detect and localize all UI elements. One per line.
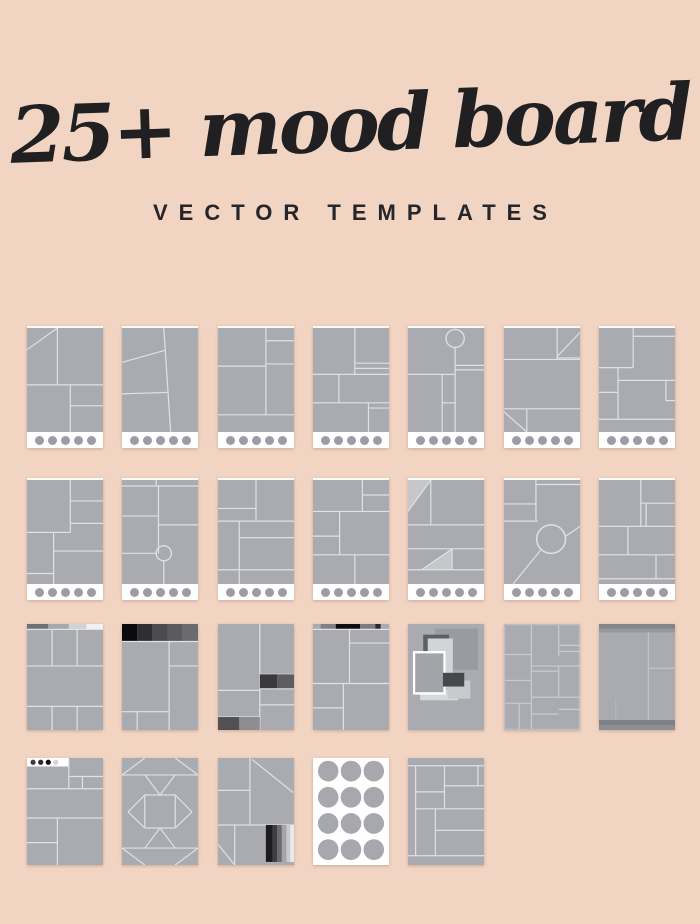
photo-dots-strip bbox=[27, 432, 103, 448]
dot-icon bbox=[551, 588, 560, 597]
dot-icon bbox=[646, 436, 655, 445]
photo-dots-strip bbox=[599, 584, 675, 600]
dot-icon bbox=[226, 436, 235, 445]
template-row-1 bbox=[0, 326, 700, 448]
dot-icon bbox=[564, 588, 573, 597]
template-collage bbox=[408, 328, 484, 432]
photo-dots-strip bbox=[599, 432, 675, 448]
dot-icon bbox=[468, 436, 477, 445]
template-thumbnail-nested-grid-r1c7 bbox=[599, 326, 675, 448]
dot-icon bbox=[659, 436, 668, 445]
dot-icon bbox=[416, 588, 425, 597]
dot-icon bbox=[633, 436, 642, 445]
dot-icon bbox=[156, 436, 165, 445]
dot-icon bbox=[169, 436, 178, 445]
template-collage bbox=[218, 758, 294, 865]
dot-icon bbox=[442, 588, 451, 597]
template-thumbnail-mondrian-grid-r2c1 bbox=[27, 478, 103, 600]
template-thumbnail-diagonal-corners-r1c6 bbox=[504, 326, 580, 448]
template-thumbnail-offset-grid-r2c4 bbox=[313, 478, 389, 600]
template-thumbnail-brick-grid-r2c7 bbox=[599, 478, 675, 600]
dot-icon bbox=[607, 588, 616, 597]
template-thumbnail-tonal-strip-light-r3c1 bbox=[27, 624, 103, 730]
template-collage bbox=[122, 758, 198, 865]
template-collage bbox=[313, 328, 389, 432]
dot-icon bbox=[512, 436, 521, 445]
dot-icon bbox=[182, 588, 191, 597]
dot-icon bbox=[334, 588, 343, 597]
dot-icon bbox=[87, 436, 96, 445]
template-thumbnail-inset-grid-r4c5 bbox=[408, 758, 484, 865]
photo-dots-strip bbox=[504, 584, 580, 600]
template-thumbnail-swatch-blocks-r3c3 bbox=[218, 624, 294, 730]
dot-icon bbox=[538, 436, 547, 445]
template-thumbnail-circle-top-r1c5 bbox=[408, 326, 484, 448]
photo-dots-strip bbox=[218, 584, 294, 600]
template-collage bbox=[408, 758, 484, 865]
template-collage bbox=[408, 480, 484, 584]
dot-icon bbox=[538, 588, 547, 597]
dot-icon bbox=[61, 436, 70, 445]
template-collage bbox=[122, 480, 198, 584]
dot-icon bbox=[169, 588, 178, 597]
template-thumbnail-stacked-bands-r1c4 bbox=[313, 326, 389, 448]
template-thumbnail-tonal-strip-dark-r3c2 bbox=[122, 624, 198, 730]
template-thumbnail-palette-dots-grid-r4c1 bbox=[27, 758, 103, 865]
template-collage bbox=[313, 480, 389, 584]
template-collage bbox=[313, 624, 389, 730]
dot-icon bbox=[360, 436, 369, 445]
template-thumbnail-diagonal-gradient-strip-r4c3 bbox=[218, 758, 294, 865]
dot-icon bbox=[321, 436, 330, 445]
template-collage bbox=[27, 328, 103, 432]
dot-icon bbox=[607, 436, 616, 445]
template-collage bbox=[313, 758, 389, 865]
template-thumbnail-layered-collage-r3c5 bbox=[408, 624, 484, 730]
dot-icon bbox=[620, 588, 629, 597]
dot-icon bbox=[659, 588, 668, 597]
dot-icon bbox=[442, 436, 451, 445]
template-collage bbox=[27, 480, 103, 584]
dot-icon bbox=[252, 436, 261, 445]
photo-dots-strip bbox=[504, 432, 580, 448]
dot-icon bbox=[265, 436, 274, 445]
dot-icon bbox=[143, 436, 152, 445]
template-thumbnail-slanted-panels-r1c2 bbox=[122, 326, 198, 448]
dot-icon bbox=[334, 436, 343, 445]
template-collage bbox=[599, 624, 675, 730]
template-collage bbox=[504, 624, 580, 730]
dot-icon bbox=[35, 436, 44, 445]
template-collage bbox=[504, 480, 580, 584]
dot-icon bbox=[416, 436, 425, 445]
dot-icon bbox=[74, 588, 83, 597]
dot-icon bbox=[455, 588, 464, 597]
template-collage bbox=[408, 624, 484, 730]
template-row-3 bbox=[0, 624, 700, 730]
dot-icon bbox=[61, 588, 70, 597]
dot-icon bbox=[48, 436, 57, 445]
dot-icon bbox=[35, 588, 44, 597]
template-collage bbox=[504, 328, 580, 432]
dot-icon bbox=[143, 588, 152, 597]
dot-icon bbox=[373, 436, 382, 445]
dot-icon bbox=[265, 588, 274, 597]
photo-dots-strip bbox=[313, 584, 389, 600]
dot-icon bbox=[156, 588, 165, 597]
photo-dots-strip bbox=[313, 432, 389, 448]
template-collage bbox=[599, 328, 675, 432]
dot-icon bbox=[87, 588, 96, 597]
template-thumbnail-dense-grid-r3c6 bbox=[504, 624, 580, 730]
template-thumbnail-star-quilt-r4c2 bbox=[122, 758, 198, 865]
photo-dots-strip bbox=[218, 432, 294, 448]
template-thumbnail-banded-cover-r3c7 bbox=[599, 624, 675, 730]
template-thumbnail-black-strip-grid-r3c4 bbox=[313, 624, 389, 730]
dot-icon bbox=[551, 436, 560, 445]
dot-icon bbox=[564, 436, 573, 445]
dot-icon bbox=[182, 436, 191, 445]
template-row-4 bbox=[0, 758, 700, 865]
dot-icon bbox=[347, 436, 356, 445]
photo-dots-strip bbox=[408, 432, 484, 448]
dot-icon bbox=[130, 588, 139, 597]
template-collage bbox=[599, 480, 675, 584]
template-thumbnail-triangle-accents-r2c5 bbox=[408, 478, 484, 600]
photo-dots-strip bbox=[408, 584, 484, 600]
dot-icon bbox=[525, 588, 534, 597]
photo-dots-strip bbox=[122, 584, 198, 600]
dot-icon bbox=[278, 588, 287, 597]
template-collage bbox=[27, 758, 103, 865]
dot-icon bbox=[468, 588, 477, 597]
dot-icon bbox=[347, 588, 356, 597]
dot-icon bbox=[74, 436, 83, 445]
dot-icon bbox=[48, 588, 57, 597]
template-thumbnail-diagonal-corner-grid-r1c1 bbox=[27, 326, 103, 448]
dot-icon bbox=[130, 436, 139, 445]
dot-icon bbox=[321, 588, 330, 597]
templates-grid bbox=[0, 0, 700, 924]
dot-icon bbox=[239, 588, 248, 597]
template-thumbnail-column-grid-r1c3 bbox=[218, 326, 294, 448]
dot-icon bbox=[646, 588, 655, 597]
template-collage bbox=[122, 328, 198, 432]
dot-icon bbox=[429, 588, 438, 597]
dot-icon bbox=[373, 588, 382, 597]
template-collage bbox=[122, 624, 198, 730]
photo-dots-strip bbox=[27, 584, 103, 600]
dot-icon bbox=[226, 588, 235, 597]
dot-icon bbox=[278, 436, 287, 445]
template-collage bbox=[27, 624, 103, 730]
dot-icon bbox=[633, 588, 642, 597]
dot-icon bbox=[429, 436, 438, 445]
dot-icon bbox=[360, 588, 369, 597]
photo-dots-strip bbox=[122, 432, 198, 448]
template-thumbnail-small-circle-grid-r2c2 bbox=[122, 478, 198, 600]
dot-icon bbox=[512, 588, 521, 597]
dot-icon bbox=[620, 436, 629, 445]
dot-icon bbox=[455, 436, 464, 445]
template-collage bbox=[218, 328, 294, 432]
template-thumbnail-big-circle-r2c6 bbox=[504, 478, 580, 600]
template-collage bbox=[218, 480, 294, 584]
dot-icon bbox=[525, 436, 534, 445]
dot-icon bbox=[252, 588, 261, 597]
template-thumbnail-block-grid-r2c3 bbox=[218, 478, 294, 600]
template-row-2 bbox=[0, 478, 700, 600]
template-thumbnail-circle-sheet-r4c4 bbox=[313, 758, 389, 865]
template-collage bbox=[218, 624, 294, 730]
dot-icon bbox=[239, 436, 248, 445]
